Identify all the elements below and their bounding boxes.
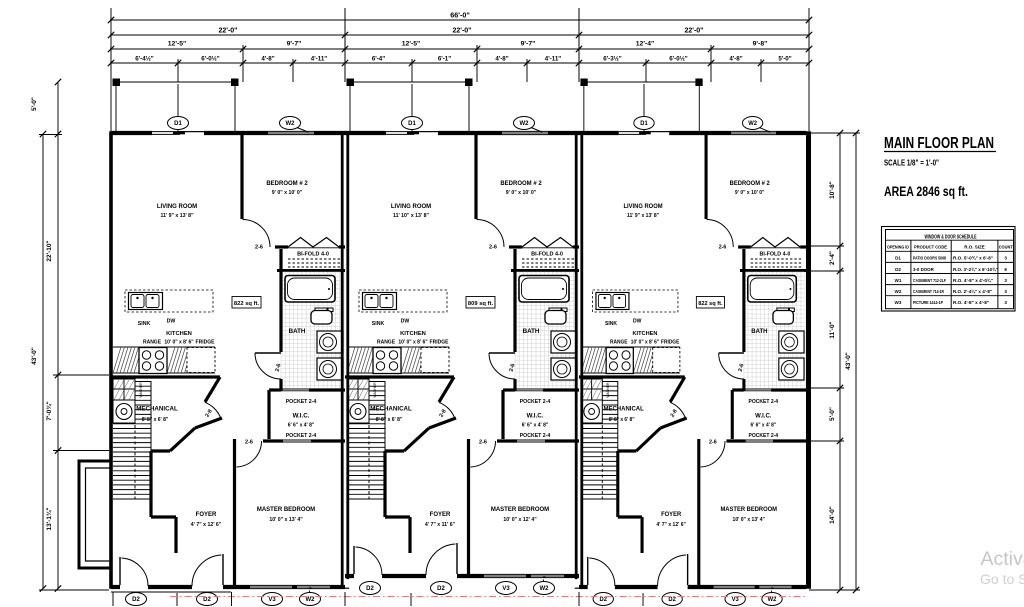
svg-text:10' 0" x 12' 4": 10' 0" x 12' 4" bbox=[503, 517, 537, 523]
svg-text:8' 8" x 6' 8": 8' 8" x 6' 8" bbox=[376, 417, 403, 423]
svg-text:4'-11": 4'-11" bbox=[311, 56, 328, 63]
svg-text:22'-10": 22'-10" bbox=[46, 240, 53, 261]
svg-text:POCKET 2-4: POCKET 2-4 bbox=[748, 399, 778, 405]
svg-text:5'-0": 5'-0" bbox=[778, 56, 791, 63]
svg-text:BATH: BATH bbox=[751, 328, 767, 335]
svg-text:2-6: 2-6 bbox=[709, 439, 717, 445]
svg-text:10' 0" x 13' 4": 10' 0" x 13' 4" bbox=[269, 517, 303, 523]
svg-text:22'-0": 22'-0" bbox=[219, 28, 238, 35]
svg-text:6' 6" x 4' 8": 6' 6" x 4' 8" bbox=[522, 423, 549, 429]
svg-text:DW: DW bbox=[167, 319, 176, 325]
svg-text:6' 6" x 4' 8": 6' 6" x 4' 8" bbox=[750, 422, 776, 428]
svg-text:W2: W2 bbox=[768, 597, 777, 603]
svg-text:AREA 2846 sq ft.: AREA 2846 sq ft. bbox=[884, 184, 968, 199]
svg-text:D2: D2 bbox=[366, 586, 374, 592]
svg-text:8' 8" x 6' 8": 8' 8" x 6' 8" bbox=[142, 417, 169, 423]
svg-text:R.O. 2'-4¼" x 4'-8": R.O. 2'-4¼" x 4'-8" bbox=[953, 289, 992, 294]
svg-text:V3: V3 bbox=[502, 586, 510, 592]
svg-text:D2: D2 bbox=[203, 597, 211, 603]
svg-text:FRIDGE: FRIDGE bbox=[196, 340, 216, 346]
svg-text:D2: D2 bbox=[668, 597, 676, 603]
svg-text:KITCHEN: KITCHEN bbox=[632, 331, 657, 337]
svg-text:LIVING ROOM: LIVING ROOM bbox=[623, 204, 662, 210]
svg-text:6'-0½": 6'-0½" bbox=[201, 56, 220, 63]
svg-text:6' 6" x 4' 8": 6' 6" x 4' 8" bbox=[288, 423, 315, 429]
svg-text:SINK: SINK bbox=[605, 321, 617, 327]
svg-text:RANGE: RANGE bbox=[143, 340, 162, 346]
svg-text:4'-8": 4'-8" bbox=[495, 56, 508, 63]
svg-text:3: 3 bbox=[1004, 278, 1007, 283]
svg-text:BI-FOLD 4-0: BI-FOLD 4-0 bbox=[297, 252, 329, 258]
svg-text:MECHANICAL: MECHANICAL bbox=[136, 406, 178, 413]
svg-text:4' 7" x 11' 6": 4' 7" x 11' 6" bbox=[425, 522, 456, 528]
svg-text:W2: W2 bbox=[306, 597, 316, 603]
svg-text:3: 3 bbox=[1004, 300, 1007, 305]
svg-text:12'-5": 12'-5" bbox=[168, 41, 186, 48]
svg-text:3-0 DOOR: 3-0 DOOR bbox=[913, 267, 935, 272]
svg-text:10' 0" x 8' 6": 10' 0" x 8' 6" bbox=[398, 340, 428, 346]
svg-text:MECHANICAL: MECHANICAL bbox=[370, 406, 412, 413]
svg-text:BEDROOM # 2: BEDROOM # 2 bbox=[500, 181, 542, 187]
svg-text:6'-3½": 6'-3½" bbox=[603, 56, 622, 63]
svg-text:BATH: BATH bbox=[289, 328, 306, 335]
svg-text:6: 6 bbox=[1004, 267, 1007, 272]
svg-text:6'-4½": 6'-4½" bbox=[135, 56, 154, 63]
svg-text:MASTER BEDROOM: MASTER BEDROOM bbox=[257, 507, 315, 513]
svg-text:3: 3 bbox=[1004, 289, 1007, 294]
svg-text:W2: W2 bbox=[748, 121, 757, 127]
svg-text:R.O. 4'-8" x 4'-0¾": R.O. 4'-8" x 4'-0¾" bbox=[953, 278, 993, 283]
svg-text:KITCHEN: KITCHEN bbox=[166, 331, 192, 337]
svg-text:5'-0": 5'-0" bbox=[829, 407, 836, 421]
svg-text:D2: D2 bbox=[132, 597, 140, 603]
svg-text:3: 3 bbox=[1004, 256, 1007, 261]
svg-text:BEDROOM # 2: BEDROOM # 2 bbox=[730, 181, 771, 187]
svg-text:2-6: 2-6 bbox=[255, 245, 263, 251]
svg-text:2-6: 2-6 bbox=[479, 440, 487, 446]
svg-text:6'-1": 6'-1" bbox=[438, 56, 451, 63]
svg-text:FOYER: FOYER bbox=[430, 512, 451, 518]
svg-text:BI-FOLD 4-0: BI-FOLD 4-0 bbox=[760, 251, 791, 257]
svg-text:POCKET 2-4: POCKET 2-4 bbox=[748, 433, 778, 439]
svg-text:BATH: BATH bbox=[523, 328, 540, 335]
svg-text:12'-5": 12'-5" bbox=[402, 41, 420, 48]
svg-text:9'-8": 9'-8" bbox=[753, 41, 768, 48]
svg-text:WASHER: WASHER bbox=[373, 382, 377, 398]
svg-text:MECHANICAL: MECHANICAL bbox=[603, 405, 644, 412]
svg-text:W1: W1 bbox=[895, 278, 902, 283]
svg-text:D2: D2 bbox=[600, 597, 608, 603]
svg-text:WASHER: WASHER bbox=[606, 382, 610, 398]
svg-text:MASTER BEDROOM: MASTER BEDROOM bbox=[720, 507, 777, 513]
svg-text:SINK: SINK bbox=[138, 321, 151, 327]
svg-text:W2: W2 bbox=[895, 289, 902, 294]
svg-text:10' 0" x 8' 6": 10' 0" x 8' 6" bbox=[631, 339, 659, 345]
svg-text:43'-0": 43'-0" bbox=[31, 347, 38, 365]
svg-text:W2: W2 bbox=[540, 586, 550, 592]
svg-text:PRODUCT CODE: PRODUCT CODE bbox=[914, 244, 947, 249]
svg-text:14'-0": 14'-0" bbox=[829, 506, 836, 524]
svg-text:W2: W2 bbox=[520, 121, 530, 127]
svg-text:FRIDGE: FRIDGE bbox=[430, 340, 450, 346]
svg-text:PATIO DOORS 5068: PATIO DOORS 5068 bbox=[913, 256, 946, 261]
svg-text:CASEMENT 712-2LF: CASEMENT 712-2LF bbox=[913, 278, 946, 283]
svg-text:11' 9" x 13' 8": 11' 9" x 13' 8" bbox=[627, 213, 660, 219]
svg-text:9' 0" x 10' 0": 9' 0" x 10' 0" bbox=[735, 190, 765, 196]
svg-text:DW: DW bbox=[633, 318, 642, 324]
svg-text:LIVING ROOM: LIVING ROOM bbox=[157, 204, 197, 210]
svg-text:22'-0": 22'-0" bbox=[453, 28, 472, 35]
svg-text:COUNT: COUNT bbox=[999, 244, 1013, 249]
svg-text:12'-4": 12'-4" bbox=[636, 41, 654, 48]
svg-text:8' 8" x 6' 8": 8' 8" x 6' 8" bbox=[609, 417, 635, 423]
svg-text:6'-4": 6'-4" bbox=[372, 56, 385, 63]
svg-text:WASHER: WASHER bbox=[139, 382, 143, 398]
svg-text:Activate Windows: Activate Windows bbox=[981, 548, 1024, 570]
svg-text:822 sq ft.: 822 sq ft. bbox=[234, 301, 260, 307]
svg-text:W.I.C.: W.I.C. bbox=[527, 413, 544, 420]
svg-text:D2: D2 bbox=[437, 586, 445, 592]
svg-text:RANGE: RANGE bbox=[377, 340, 396, 346]
svg-text:SCALE 1/8" = 1'-0": SCALE 1/8" = 1'-0" bbox=[884, 159, 939, 168]
svg-text:DW: DW bbox=[401, 319, 410, 325]
svg-text:11' 9" x 13' 8": 11' 9" x 13' 8" bbox=[160, 213, 194, 219]
svg-text:22'-0": 22'-0" bbox=[685, 28, 704, 35]
svg-text:13'-1¾": 13'-1¾" bbox=[45, 507, 53, 530]
svg-text:Go to Settings to activate: Go to Settings to activate bbox=[980, 571, 1024, 587]
svg-text:4'-11": 4'-11" bbox=[545, 56, 562, 63]
svg-text:R.O. 5'-0¾" x 6'-8": R.O. 5'-0¾" x 6'-8" bbox=[953, 256, 993, 261]
svg-text:43'-0": 43'-0" bbox=[845, 352, 852, 370]
svg-text:FOYER: FOYER bbox=[661, 512, 682, 518]
svg-text:2-6: 2-6 bbox=[719, 244, 727, 250]
svg-text:10' 0" x 8' 6": 10' 0" x 8' 6" bbox=[164, 340, 194, 346]
svg-text:LIVING ROOM: LIVING ROOM bbox=[391, 204, 431, 210]
svg-text:BI-FOLD 4-0: BI-FOLD 4-0 bbox=[531, 252, 563, 258]
svg-text:809 sq ft.: 809 sq ft. bbox=[468, 301, 494, 307]
svg-text:RANGE: RANGE bbox=[610, 339, 628, 345]
svg-text:W3: W3 bbox=[895, 300, 902, 305]
svg-text:MAIN FLOOR PLAN: MAIN FLOOR PLAN bbox=[884, 135, 994, 152]
svg-text:11' 10" x 13' 8": 11' 10" x 13' 8" bbox=[393, 213, 429, 219]
svg-text:POCKET 2-4: POCKET 2-4 bbox=[520, 433, 551, 439]
svg-text:FRIDGE: FRIDGE bbox=[661, 339, 680, 345]
svg-text:V3: V3 bbox=[268, 597, 276, 603]
svg-text:D1: D1 bbox=[640, 121, 648, 127]
svg-text:4'-8": 4'-8" bbox=[729, 56, 742, 63]
svg-text:2'-4": 2'-4" bbox=[829, 251, 836, 265]
svg-text:11'-0": 11'-0" bbox=[829, 321, 836, 338]
svg-text:WINDOW & DOOR SCHEDULE: WINDOW & DOOR SCHEDULE bbox=[925, 234, 977, 240]
svg-text:2-6: 2-6 bbox=[245, 440, 253, 446]
svg-text:9' 0" x 10' 0": 9' 0" x 10' 0" bbox=[272, 190, 303, 196]
svg-text:FOYER: FOYER bbox=[196, 512, 217, 518]
svg-text:W2: W2 bbox=[286, 121, 296, 127]
svg-text:10' 0" x 13' 4": 10' 0" x 13' 4" bbox=[733, 517, 766, 523]
svg-text:SINK: SINK bbox=[372, 321, 385, 327]
svg-text:66'-0": 66'-0" bbox=[450, 11, 470, 20]
svg-text:V3: V3 bbox=[732, 597, 740, 603]
svg-text:4' 7" x 12' 6": 4' 7" x 12' 6" bbox=[656, 522, 686, 528]
svg-text:2-6: 2-6 bbox=[489, 245, 497, 251]
svg-text:CASEMENT 714-1R: CASEMENT 714-1R bbox=[913, 289, 945, 294]
svg-text:9'-7": 9'-7" bbox=[287, 41, 302, 48]
svg-text:R.O. 4'-8" x 4'-8": R.O. 4'-8" x 4'-8" bbox=[953, 300, 989, 305]
svg-text:10'-8": 10'-8" bbox=[829, 181, 836, 199]
svg-text:W.I.C.: W.I.C. bbox=[755, 412, 772, 419]
svg-text:POCKET 2-4: POCKET 2-4 bbox=[286, 433, 317, 439]
svg-text:7'-0¾": 7'-0¾" bbox=[45, 401, 53, 420]
svg-text:D1: D1 bbox=[408, 121, 416, 127]
svg-text:D1: D1 bbox=[895, 256, 901, 261]
svg-text:MASTER BEDROOM: MASTER BEDROOM bbox=[491, 507, 549, 513]
svg-text:D2: D2 bbox=[895, 267, 901, 272]
svg-text:4'-8": 4'-8" bbox=[261, 56, 274, 63]
svg-text:KITCHEN: KITCHEN bbox=[400, 331, 426, 337]
svg-text:OPENING ID: OPENING ID bbox=[887, 244, 910, 249]
svg-text:W.I.C.: W.I.C. bbox=[293, 413, 310, 420]
svg-text:BEDROOM # 2: BEDROOM # 2 bbox=[266, 181, 308, 187]
svg-text:9'-7": 9'-7" bbox=[521, 41, 536, 48]
svg-text:822 sq ft.: 822 sq ft. bbox=[698, 301, 723, 307]
svg-text:R.O. SIZE: R.O. SIZE bbox=[964, 244, 985, 249]
svg-text:POCKET 2-4: POCKET 2-4 bbox=[520, 399, 551, 405]
svg-text:6'-0½": 6'-0½" bbox=[669, 56, 688, 63]
svg-text:9' 0" x 10' 0": 9' 0" x 10' 0" bbox=[506, 190, 537, 196]
svg-text:R.O. 3'-2¾" x 6'-10¾": R.O. 3'-2¾" x 6'-10¾" bbox=[953, 267, 998, 272]
svg-text:PICTURE 1414-1P: PICTURE 1414-1P bbox=[913, 300, 943, 305]
svg-text:POCKET 2-4: POCKET 2-4 bbox=[286, 399, 317, 405]
svg-text:5'-0": 5'-0" bbox=[31, 97, 38, 111]
svg-text:D1: D1 bbox=[174, 121, 182, 127]
svg-text:4' 7" x 12' 6": 4' 7" x 12' 6" bbox=[191, 522, 222, 528]
